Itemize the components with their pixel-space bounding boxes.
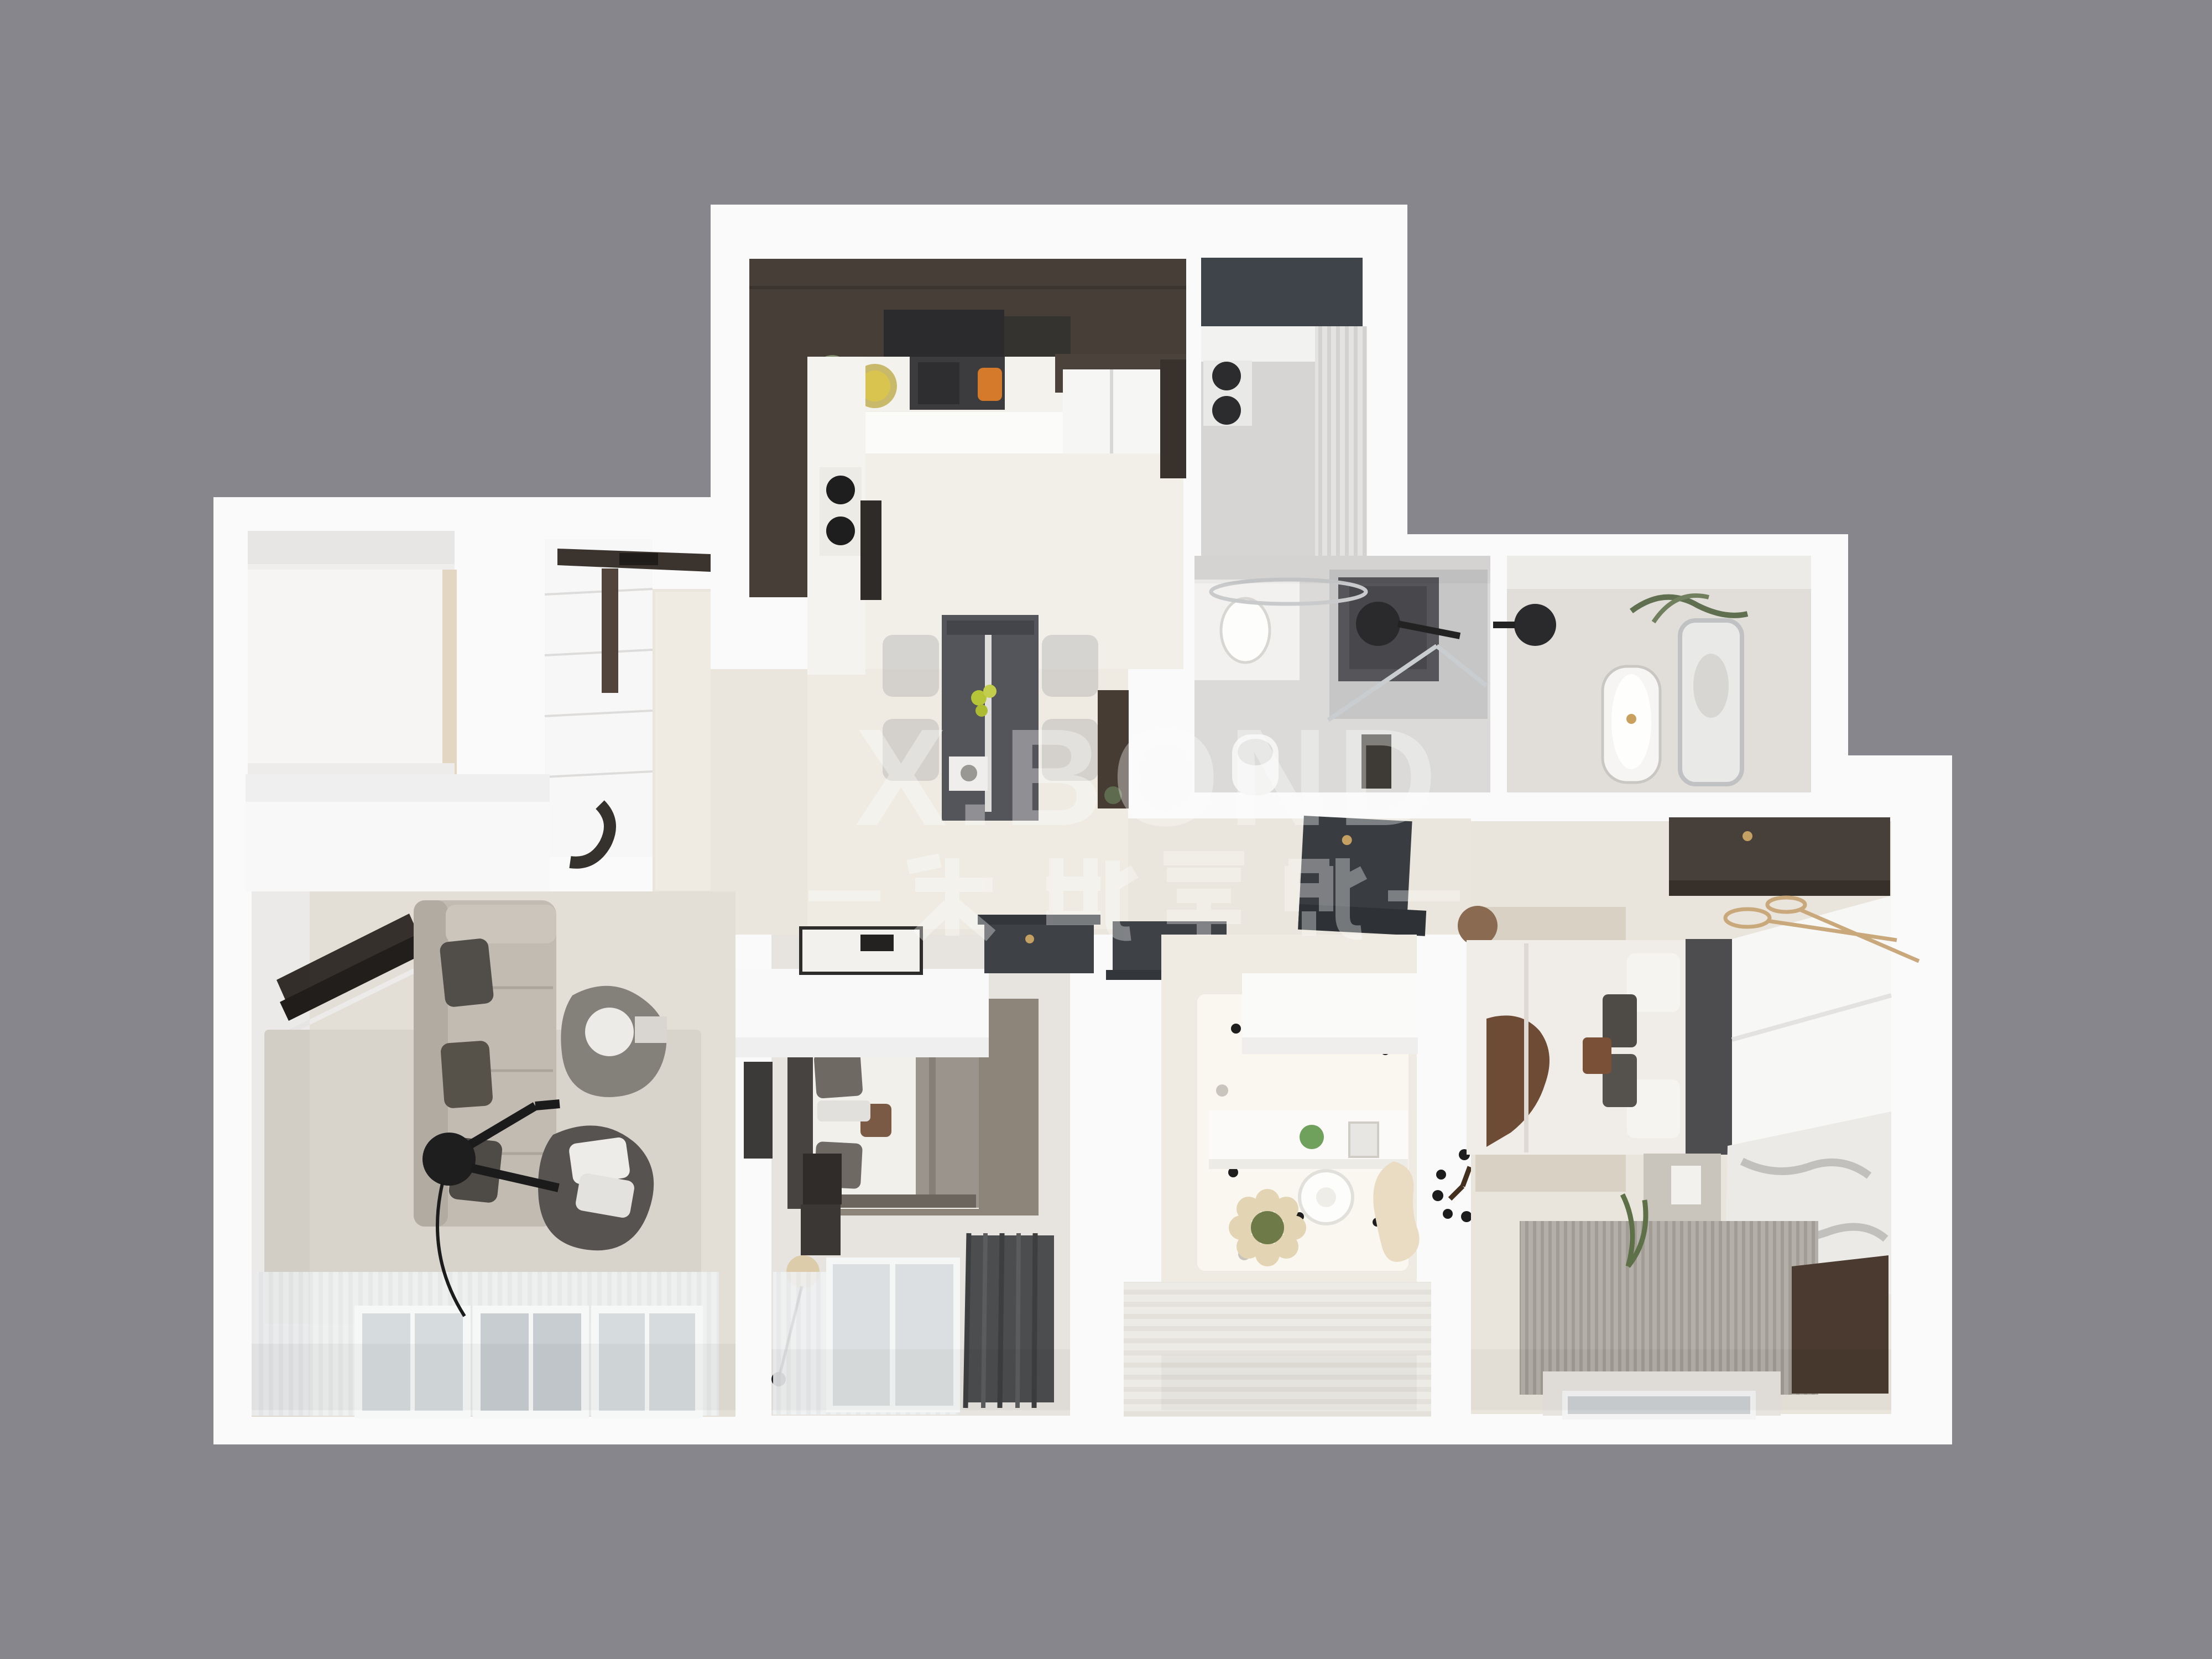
svg-text:X.BOND: X.BOND — [855, 700, 1446, 854]
